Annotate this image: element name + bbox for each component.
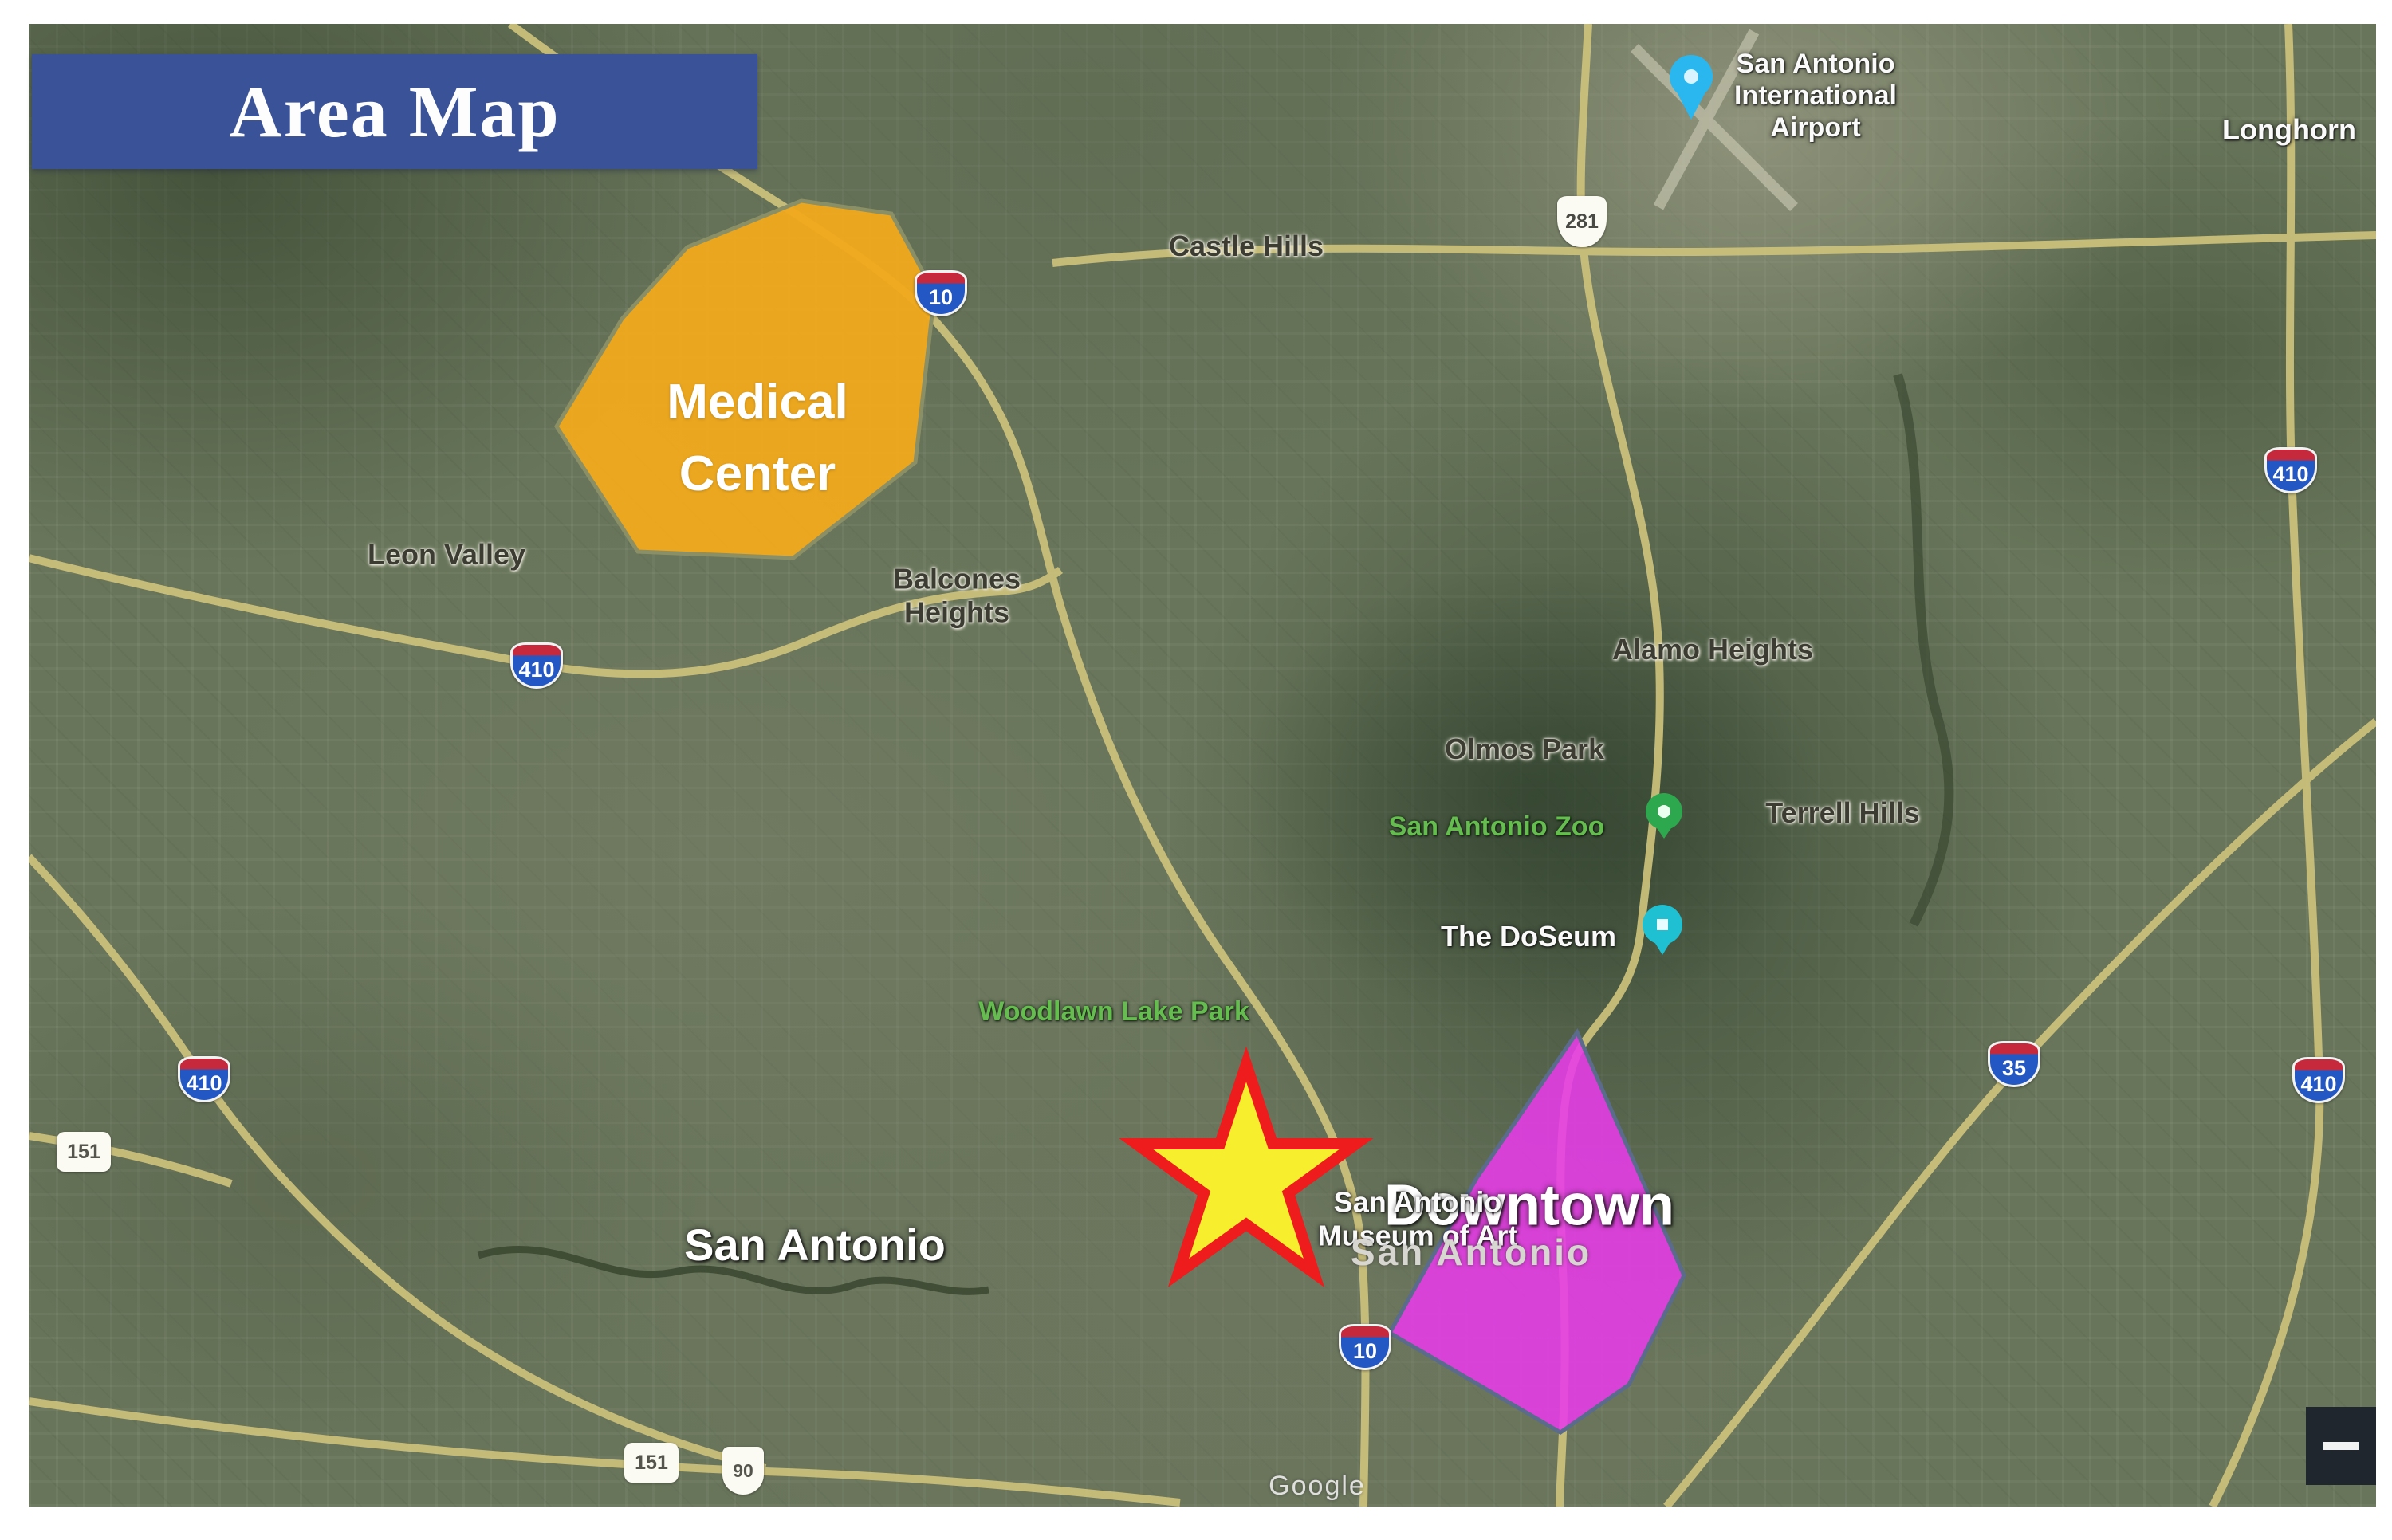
- banner-title: Area Map: [229, 69, 560, 154]
- google-watermark: Google: [1269, 1470, 1366, 1502]
- road-410-left: [29, 857, 765, 1468]
- label-olmos-park: Olmos Park: [1445, 733, 1604, 766]
- label-the-doseum: The DoSeum: [1441, 920, 1616, 953]
- sh151-shield-left: 151: [57, 1132, 111, 1172]
- label-leon-valley: Leon Valley: [368, 538, 525, 572]
- us90-shield: 90: [722, 1447, 764, 1495]
- sh151-shield-bottom: 151: [624, 1443, 679, 1483]
- road-i35: [1666, 721, 2376, 1507]
- label-alamo-heights: Alamo Heights: [1612, 633, 1813, 666]
- label-castle-hills: Castle Hills: [1169, 230, 1324, 263]
- medical-center-label: Medical Center: [667, 367, 848, 510]
- creek-line: [1898, 375, 1949, 925]
- label-terrell-hills: Terrell Hills: [1765, 796, 1919, 830]
- label-san-antonio: San Antonio: [684, 1219, 946, 1271]
- label-longhorn: Longhorn: [2222, 113, 2356, 147]
- road-410-right: [2213, 24, 2319, 1507]
- label-san-antonio-zoo: San Antonio Zoo: [1389, 811, 1605, 843]
- doseum-pin[interactable]: [1643, 905, 1682, 955]
- label-airport: San Antonio International Airport: [1734, 48, 1897, 143]
- label-san-antonio-city: San Antonio: [1351, 1231, 1591, 1274]
- minus-icon: [2323, 1442, 2359, 1450]
- label-woodlawn-lake-park: Woodlawn Lake Park: [978, 996, 1249, 1027]
- label-balcones-heights: Balcones Heights: [893, 563, 1021, 631]
- area-map-banner: Area Map: [32, 54, 757, 169]
- zoom-out-button[interactable]: [2306, 1407, 2376, 1485]
- area-map-page: Area Map Medical Center Downtown Castle …: [0, 0, 2392, 1540]
